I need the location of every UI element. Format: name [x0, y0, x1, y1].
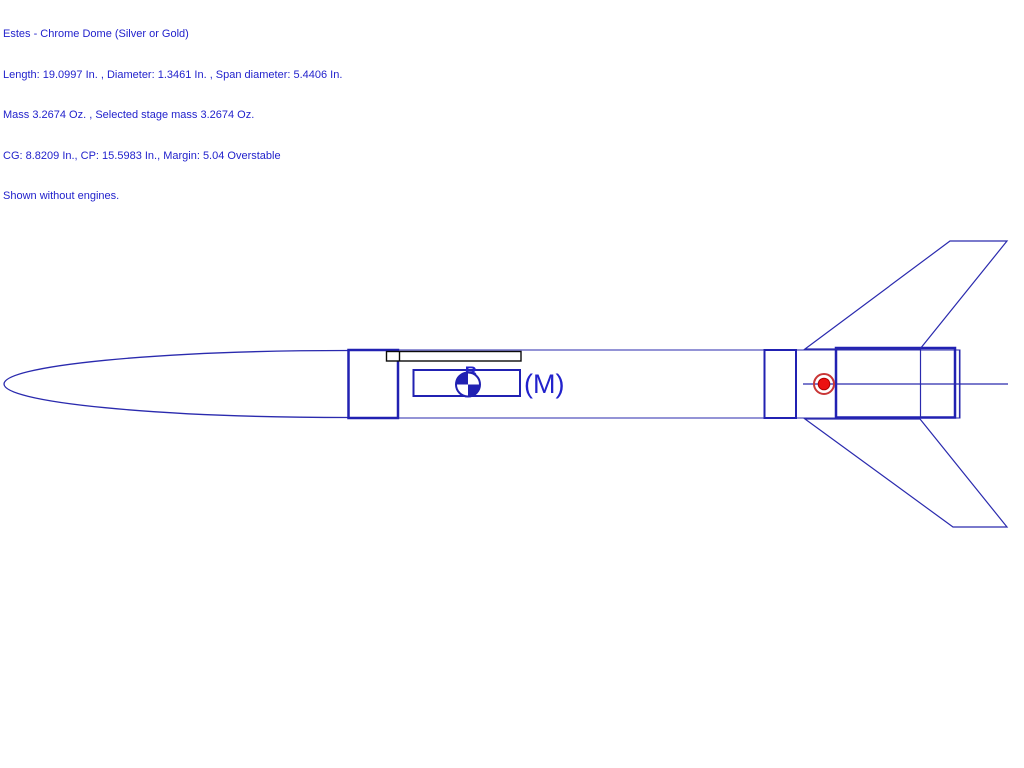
nose-cone[interactable] — [4, 351, 349, 418]
design-canvas: Estes - Chrome Dome (Silver or Gold) Len… — [0, 0, 1024, 768]
tube-coupler[interactable] — [765, 350, 797, 418]
cg-marker-quadrant-topleft — [456, 373, 468, 385]
rocket-side-view-diagram: B (M) — [0, 0, 1024, 768]
cp-marker-dot — [818, 378, 830, 390]
lower-fin[interactable] — [805, 419, 1007, 527]
launch-lug[interactable] — [387, 352, 522, 362]
launch-lug-body[interactable] — [387, 352, 522, 362]
cg-marker-quadrant-bottomright — [468, 385, 480, 397]
engine-mount-section[interactable] — [836, 348, 960, 418]
mass-override-label: (M) — [524, 369, 564, 399]
cg-marker: B — [456, 363, 480, 397]
upper-fin[interactable] — [805, 241, 1007, 349]
engine-tube[interactable] — [836, 348, 955, 418]
